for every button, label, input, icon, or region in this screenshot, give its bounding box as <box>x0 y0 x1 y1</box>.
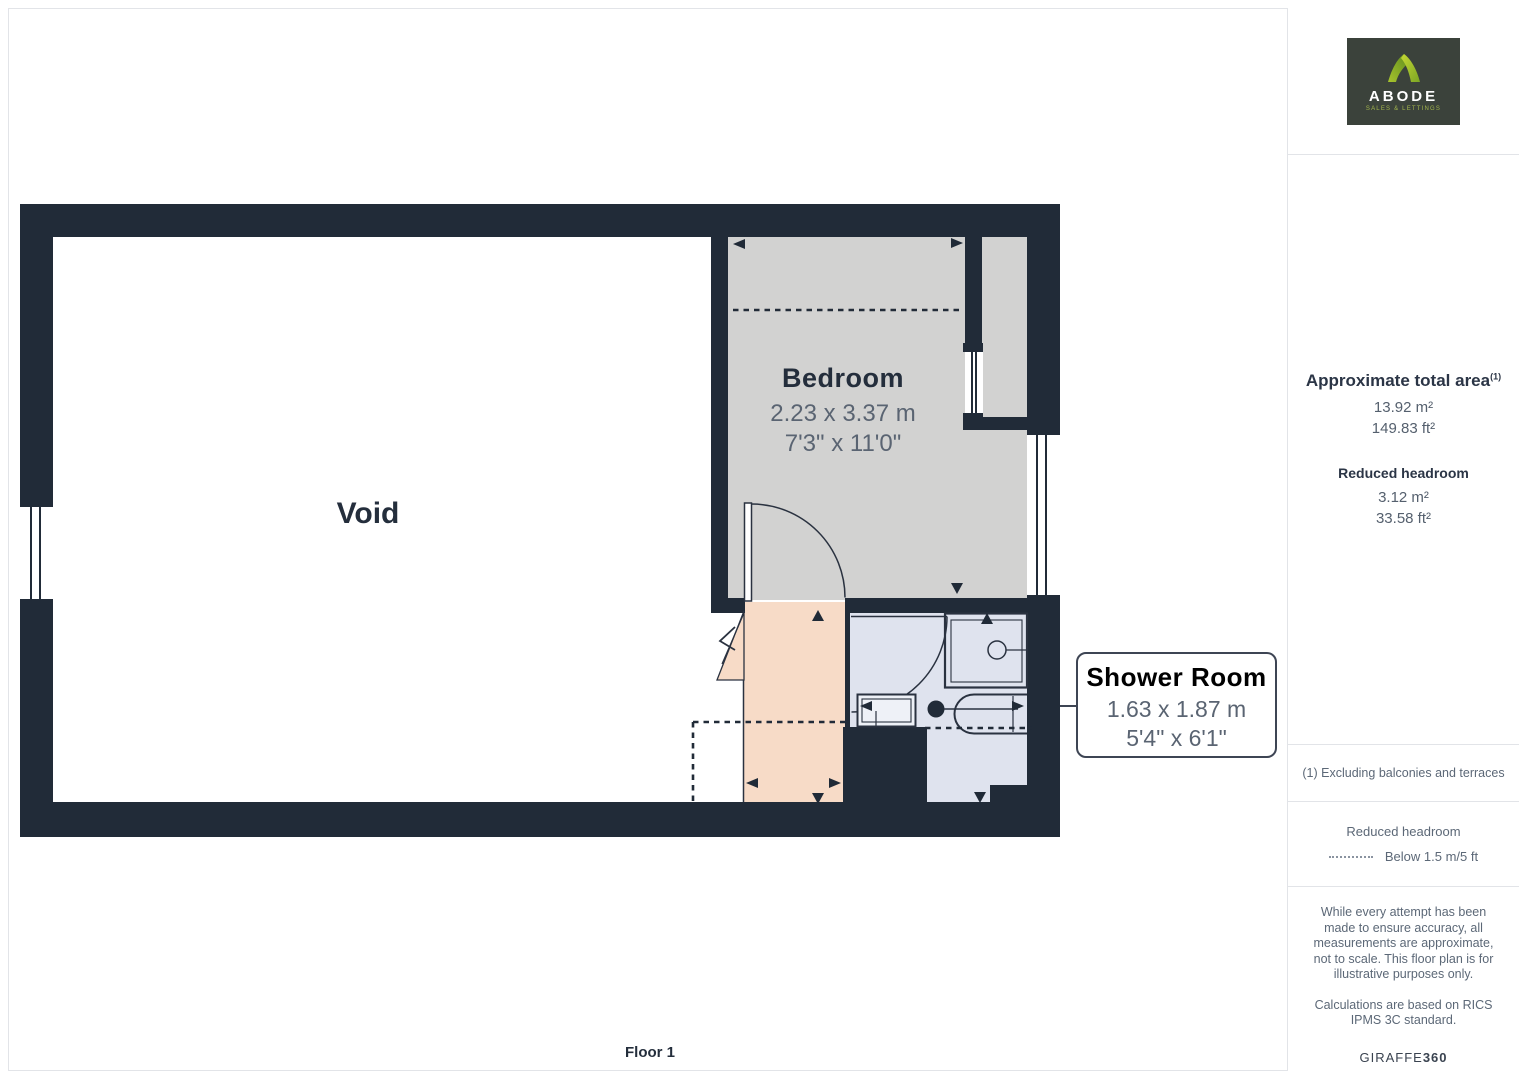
wall-closet-bottom <box>983 417 1028 430</box>
void-room-label: Void <box>298 497 438 531</box>
callout-connector-line <box>1060 705 1076 707</box>
floor-label: Floor 1 <box>580 1044 720 1061</box>
shower-room-size-imperial: 5'4" x 6'1" <box>1078 724 1275 753</box>
window-pane-line <box>1045 435 1047 595</box>
bedroom-closet-floor <box>982 237 1028 417</box>
dotted-line-legend-swatch <box>1329 856 1373 858</box>
window-pane-line <box>971 352 973 413</box>
plan-symbols-layer <box>0 0 1287 1080</box>
wall-bedroom-bottom <box>845 598 1028 613</box>
window-pane-line <box>975 352 977 413</box>
info-sidebar: ABODE SALES & LETTINGS Approximate total… <box>1287 8 1519 1071</box>
abode-logo: ABODE SALES & LETTINGS <box>1347 38 1460 125</box>
wall-landing-shower <box>845 613 850 727</box>
logo-section: ABODE SALES & LETTINGS <box>1288 8 1519 155</box>
shower-room-size-metric: 1.63 x 1.87 m <box>1078 695 1275 724</box>
window-pane-line <box>30 507 32 599</box>
bedroom-size-metric: 2.23 x 3.37 m <box>733 399 953 429</box>
wall-notch-bottom-right <box>990 785 1028 805</box>
shower-room-floor <box>850 613 1027 727</box>
landing-floor <box>743 602 845 803</box>
reduced-headroom-imperial: 33.58 ft² <box>1376 508 1431 529</box>
total-area-imperial: 149.83 ft² <box>1372 418 1435 439</box>
area-summary-section: Approximate total area(1) 13.92 m² 149.8… <box>1288 155 1519 745</box>
stairs-tread-line <box>722 613 744 664</box>
wall-top <box>20 204 1060 237</box>
total-area-metric: 13.92 m² <box>1374 397 1433 418</box>
window-left-wall <box>20 505 53 601</box>
giraffe360-brand-regular: GIRAFFE <box>1359 1050 1422 1065</box>
total-area-footnote-marker: (1) <box>1490 371 1501 381</box>
legend-item-text: Below 1.5 m/5 ft <box>1385 849 1478 864</box>
disclaimer-section: While every attempt has been made to ens… <box>1288 887 1519 1069</box>
legend-title: Reduced headroom <box>1346 824 1460 839</box>
wall-closet-window-cap-bottom <box>963 413 983 430</box>
wall-bedroom-closet <box>965 237 982 348</box>
window-bedroom-closet <box>965 352 983 413</box>
reduced-headroom-metric: 3.12 m² <box>1378 487 1429 508</box>
total-area-title-text: Approximate total area <box>1306 371 1490 390</box>
disclaimer-standard: Calculations are based on RICS IPMS 3C s… <box>1305 998 1502 1029</box>
disclaimer-accuracy: While every attempt has been made to ens… <box>1305 905 1502 983</box>
footnote-section: (1) Excluding balconies and terraces <box>1288 745 1519 802</box>
window-pane-line <box>1036 435 1038 595</box>
legend-section: Reduced headroom Below 1.5 m/5 ft <box>1288 802 1519 887</box>
logo-chevron-right-stroke <box>1401 54 1420 82</box>
legend-row: Below 1.5 m/5 ft <box>1329 849 1478 864</box>
bedroom-label: Bedroom 2.23 x 3.37 m 7'3" x 11'0" <box>733 363 953 459</box>
footnote-text: (1) Excluding balconies and terraces <box>1302 766 1504 780</box>
reduced-headroom-title: Reduced headroom <box>1338 465 1469 481</box>
logo-chevron-icon <box>1380 50 1428 86</box>
wall-bottom <box>20 802 1060 837</box>
bedroom-size-imperial: 7'3" x 11'0" <box>733 429 953 459</box>
giraffe360-brand: GIRAFFE360 <box>1359 1050 1447 1065</box>
logo-name-text: ABODE <box>1369 88 1438 105</box>
bedroom-name: Bedroom <box>733 363 953 394</box>
logo-tagline-text: SALES & LETTINGS <box>1366 106 1441 112</box>
wall-void-bedroom <box>711 237 728 612</box>
bedroom-floor-extension <box>965 430 1028 600</box>
shower-room-name: Shower Room <box>1078 662 1275 693</box>
giraffe360-brand-bold: 360 <box>1423 1050 1448 1065</box>
stairs-icon <box>717 611 744 680</box>
shower-room-floor-lower <box>927 727 1028 785</box>
total-area-title: Approximate total area(1) <box>1306 371 1501 391</box>
floor-plan: Void Bedroom 2.23 x 3.37 m 7'3" x 11'0" … <box>0 0 1287 1080</box>
window-right-wall <box>1027 433 1060 597</box>
shower-room-callout: Shower Room 1.63 x 1.87 m 5'4" x 6'1" <box>1076 652 1277 758</box>
stairs-direction-arrow-icon <box>720 627 735 650</box>
wall-bedroom-door-stub <box>711 598 745 613</box>
window-pane-line <box>39 507 41 599</box>
wall-closet-window-cap-top <box>963 343 983 352</box>
wall-block-lower <box>843 727 927 807</box>
